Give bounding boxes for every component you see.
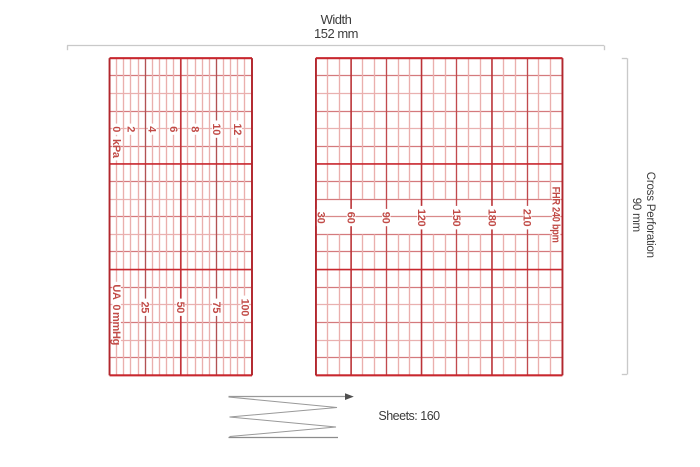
svg-text:180: 180: [485, 209, 497, 227]
svg-text:2: 2: [124, 126, 136, 132]
svg-text:150: 150: [450, 209, 462, 227]
svg-text:0: 0: [110, 304, 122, 310]
svg-text:12: 12: [231, 123, 243, 135]
svg-text:100: 100: [238, 299, 250, 317]
svg-text:10: 10: [210, 123, 222, 135]
svg-text:mmHg: mmHg: [110, 312, 122, 345]
svg-text:75: 75: [210, 301, 222, 313]
svg-text:FHR 240 bpm: FHR 240 bpm: [550, 187, 562, 243]
svg-text:UA: UA: [110, 284, 122, 300]
svg-text:0: 0: [110, 126, 122, 132]
svg-text:kPa: kPa: [110, 139, 122, 159]
svg-text:8: 8: [188, 126, 200, 132]
svg-text:50: 50: [174, 301, 186, 313]
svg-text:210: 210: [521, 209, 533, 227]
svg-text:90: 90: [380, 212, 392, 224]
svg-text:25: 25: [139, 301, 151, 313]
svg-text:60: 60: [345, 212, 357, 224]
svg-text:120: 120: [415, 209, 427, 227]
svg-text:6: 6: [167, 126, 179, 132]
